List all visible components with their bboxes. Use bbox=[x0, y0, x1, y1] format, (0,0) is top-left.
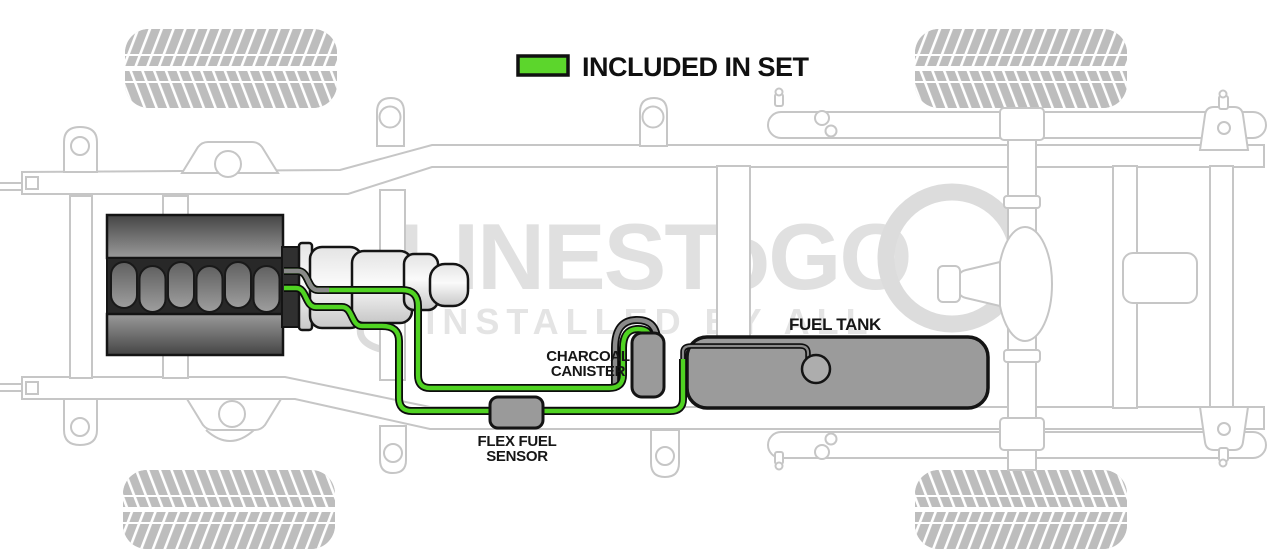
fuel-line-diagram-page: LINESToGO INSTALLED BY ALL bbox=[0, 0, 1280, 558]
tire-rear-left bbox=[915, 29, 1127, 108]
crossmember bbox=[70, 196, 92, 378]
rear-crossmember bbox=[1210, 166, 1233, 408]
legend-label: INCLUDED IN SET bbox=[582, 52, 810, 82]
frame-horn-notch bbox=[26, 382, 38, 394]
manifold-tube bbox=[140, 266, 166, 312]
legend-swatch bbox=[518, 56, 568, 75]
tire-front-right bbox=[123, 470, 335, 549]
pinion-yoke bbox=[938, 266, 960, 302]
body-mount-hole bbox=[219, 401, 245, 427]
engine-block-upper bbox=[107, 215, 283, 258]
tire-rear-right bbox=[915, 470, 1127, 549]
flex-fuel-sensor bbox=[490, 397, 543, 428]
grease-fitting bbox=[776, 89, 783, 96]
pinion-snout bbox=[958, 262, 1000, 306]
manifold-tube bbox=[254, 266, 280, 312]
rear-bracket-plate bbox=[1123, 253, 1197, 303]
axle-collar bbox=[1004, 196, 1040, 208]
grease-fitting bbox=[1220, 460, 1227, 467]
tire-front-left bbox=[125, 29, 337, 108]
spring-bolt bbox=[815, 445, 829, 459]
manifold-tube bbox=[168, 262, 194, 308]
spring-bolt bbox=[815, 111, 829, 125]
frame-horn-notch bbox=[26, 177, 38, 189]
body-mount-cup bbox=[206, 430, 254, 441]
grease-fitting bbox=[1220, 91, 1227, 98]
transmission-output-shaft bbox=[430, 264, 468, 306]
u-bolt-plate bbox=[1000, 108, 1044, 140]
body-mount-hole bbox=[215, 151, 241, 177]
axle-collar bbox=[1004, 350, 1040, 362]
u-bolt-plate bbox=[1000, 418, 1044, 450]
manifold-tube bbox=[111, 262, 137, 308]
mount-tab-hole bbox=[643, 107, 664, 128]
watermark-brand-text: LINESToGO bbox=[398, 204, 911, 309]
mount-tab-hole bbox=[380, 107, 401, 128]
label-charcoal-canister: CANISTER bbox=[551, 363, 626, 380]
mount-tab-hole bbox=[71, 137, 89, 155]
mount-tab-hole bbox=[71, 418, 89, 436]
fuel-tank bbox=[683, 337, 988, 408]
legend: INCLUDED IN SET bbox=[518, 52, 810, 82]
manifold-tube bbox=[197, 266, 223, 312]
mount-tab-hole bbox=[656, 447, 674, 465]
spring-bolt bbox=[826, 434, 837, 445]
manifold-tube bbox=[225, 262, 251, 308]
spring-bolt bbox=[826, 126, 837, 137]
engine bbox=[107, 215, 301, 355]
shackle-hole bbox=[1218, 122, 1230, 134]
differential-housing bbox=[998, 227, 1052, 341]
mount-tab-hole bbox=[384, 444, 402, 462]
charcoal-canister bbox=[632, 333, 664, 397]
label-flex-fuel-sensor: SENSOR bbox=[486, 448, 548, 465]
fuel-pump-module bbox=[802, 355, 830, 383]
shackle-hole bbox=[1218, 423, 1230, 435]
grease-fitting bbox=[776, 463, 783, 470]
label-fuel-tank: FUEL TANK bbox=[789, 315, 882, 334]
engine-block-lower bbox=[107, 314, 283, 355]
truck-chassis-fuel-line-diagram: LINESToGO INSTALLED BY ALL bbox=[0, 0, 1280, 558]
